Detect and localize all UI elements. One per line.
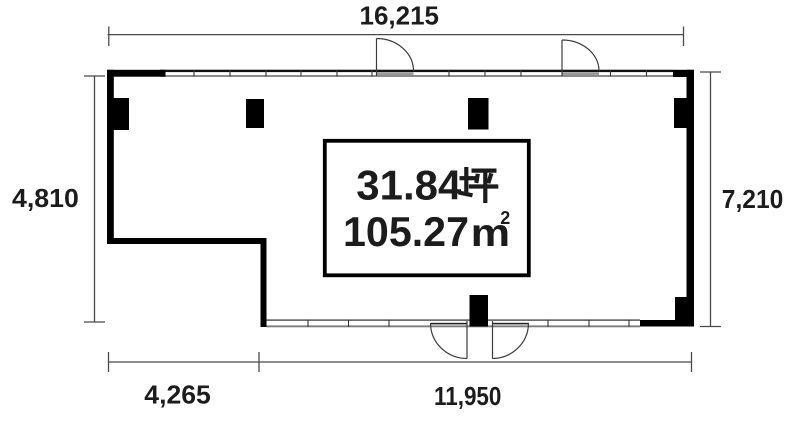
svg-text:4,265: 4,265: [144, 381, 211, 409]
svg-text:7,210: 7,210: [722, 186, 784, 214]
svg-text:4,810: 4,810: [12, 185, 79, 213]
svg-text:31.84: 31.84: [356, 161, 462, 208]
svg-text:16,215: 16,215: [360, 3, 440, 31]
svg-text:105.27: 105.27: [343, 208, 469, 255]
svg-text:11,950: 11,950: [434, 383, 501, 411]
svg-text:2: 2: [500, 208, 510, 228]
